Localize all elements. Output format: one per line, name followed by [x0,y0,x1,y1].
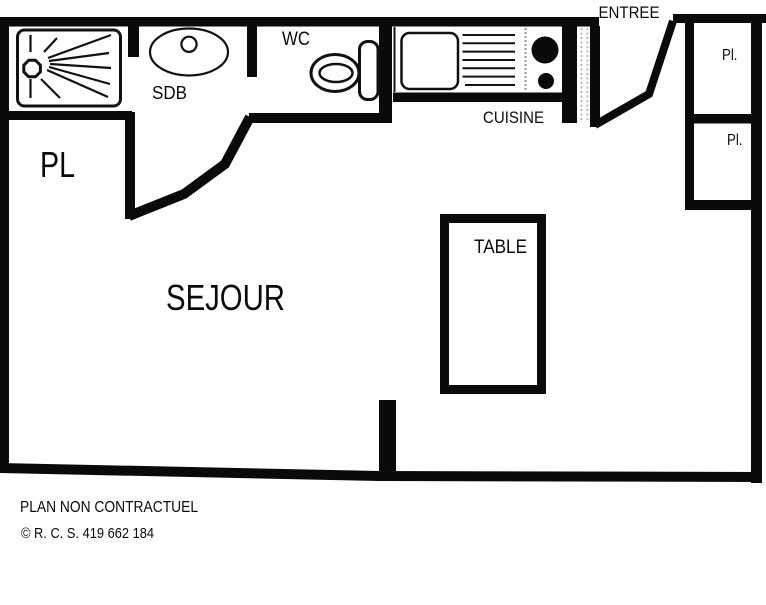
svg-text:SEJOUR: SEJOUR [166,277,285,318]
svg-text:TABLE: TABLE [474,236,527,258]
svg-text:Pl.: Pl. [722,47,738,64]
svg-text:WC: WC [282,28,310,50]
svg-text:ENTREE: ENTREE [599,4,660,22]
svg-text:© R. C. S. 419 662 184: © R. C. S. 419 662 184 [21,525,154,542]
svg-text:SDB: SDB [152,82,187,103]
svg-text:CUISINE: CUISINE [483,108,544,127]
svg-text:PL: PL [40,144,75,185]
svg-text:PLAN NON CONTRACTUEL: PLAN NON CONTRACTUEL [20,499,198,516]
svg-text:Pl.: Pl. [727,132,743,149]
